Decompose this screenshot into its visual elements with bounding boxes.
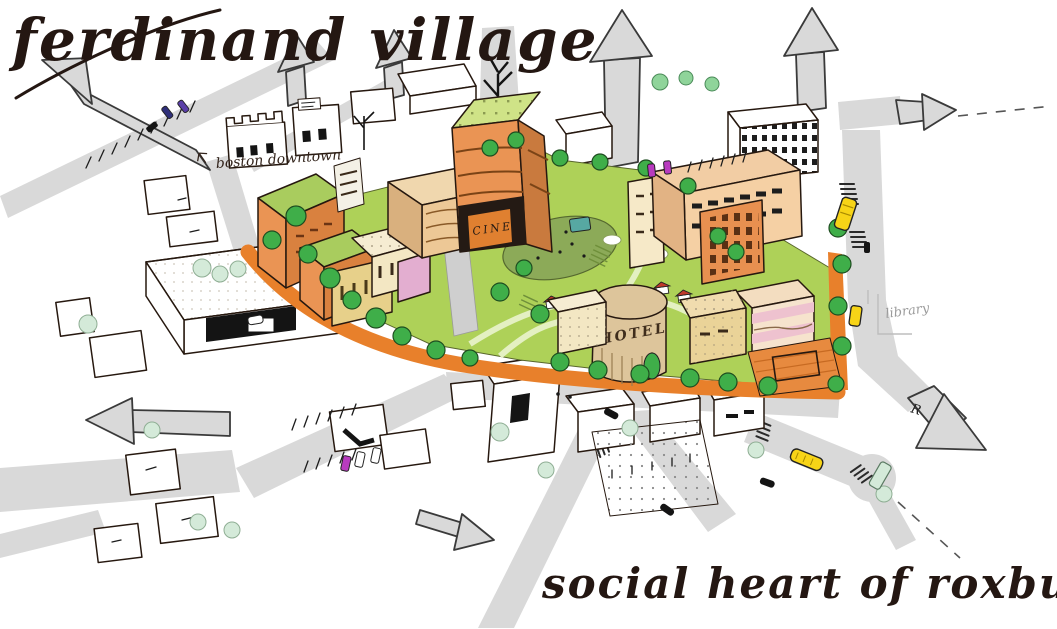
road-arrow-southeast-large — [908, 386, 986, 450]
bottomcenter-cluster — [566, 378, 764, 516]
billboard-sign — [334, 158, 364, 212]
orange-midrise — [700, 200, 764, 284]
map-drawing: CINE HOTEL — [0, 0, 1057, 629]
road-arrow-east-top — [896, 94, 956, 130]
svg-text:library: library — [884, 301, 930, 322]
illustration-canvas: CINE HOTEL — [0, 0, 1057, 629]
road-arrow-southeast-small — [416, 510, 494, 550]
trees-light — [652, 71, 719, 91]
road-dashes — [898, 106, 1052, 558]
left-cluster — [144, 176, 218, 247]
road-arrow-west-left — [86, 398, 230, 444]
yellow-car-east — [849, 305, 863, 326]
dotted-parking-lot — [592, 420, 718, 516]
tan-market-building — [680, 290, 746, 364]
road-right-vertical — [842, 130, 934, 412]
caption: social heart of roxbury — [541, 559, 1057, 608]
cinema-tower: CINE — [452, 92, 552, 252]
road-bottomright-stub — [866, 490, 916, 550]
road-topright-band — [838, 96, 902, 130]
pavilion — [569, 217, 591, 233]
page-title: ferdinand village — [8, 6, 599, 74]
road-arrow-up-right — [784, 8, 838, 112]
library-annotation: library — [868, 290, 931, 334]
road-left-corner — [0, 510, 106, 558]
left-lower-boxes — [56, 298, 147, 378]
